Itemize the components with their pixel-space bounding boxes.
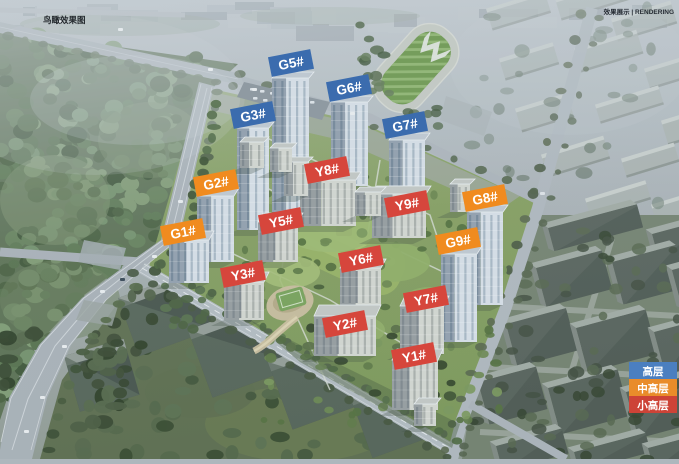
svg-text:效果展示 | RENDERING: 效果展示 | RENDERING (604, 7, 674, 16)
svg-text:小高层: 小高层 (636, 399, 669, 412)
svg-text:鸟瞰效果图: 鸟瞰效果图 (43, 15, 86, 25)
svg-text:高层: 高层 (643, 365, 664, 378)
svg-text:中高层: 中高层 (637, 382, 669, 395)
